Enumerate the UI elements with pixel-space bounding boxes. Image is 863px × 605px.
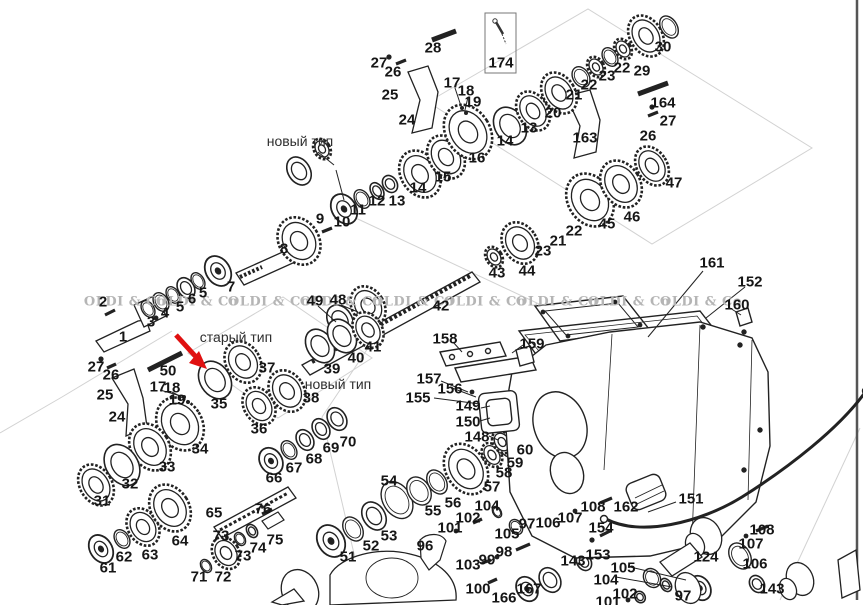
part-number-label: 154	[588, 521, 613, 536]
part-number-label: 31	[94, 494, 111, 509]
part-number-label: 96	[417, 539, 434, 554]
part-number-label: 27	[660, 114, 677, 129]
part-number-label: 26	[103, 368, 120, 383]
part-number-label: 33	[159, 460, 176, 475]
part-number-label: 47	[666, 176, 683, 191]
part-number-label: 26	[385, 65, 402, 80]
part-number-label: 45	[599, 217, 616, 232]
part-number-label: 97	[675, 589, 692, 604]
part-number-label: 28	[425, 41, 442, 56]
part-number-label: 103	[455, 558, 480, 573]
part-number-label: 152	[737, 275, 762, 290]
part-number-label: 6	[188, 292, 196, 307]
part-number-label: 11	[350, 203, 366, 218]
part-number-label: 22	[581, 78, 598, 93]
part-number-label: 143	[560, 554, 585, 569]
part-number-label: 160	[724, 298, 749, 313]
part-number-label: 153	[585, 548, 610, 563]
part-number-label: 48	[330, 293, 347, 308]
part-number-label: 12	[369, 194, 386, 209]
part-number-label: 14	[497, 134, 514, 149]
part-number-label: 30	[655, 40, 672, 55]
part-number-label: 143	[759, 582, 784, 597]
part-number-label: 73	[213, 529, 230, 544]
part-number-label: 42	[433, 299, 450, 314]
part-number-label: 150	[455, 415, 480, 430]
part-number-label: 35	[211, 397, 228, 412]
part-number-label: 75	[267, 533, 284, 548]
part-number-label: 74	[250, 541, 267, 556]
part-number-label: 76	[255, 502, 272, 517]
part-number-label: 51	[340, 550, 357, 565]
part-number-label: 63	[142, 548, 159, 563]
part-number-label: 72	[215, 570, 232, 585]
part-number-label: 124	[693, 550, 718, 565]
part-number-label: 174	[488, 56, 513, 71]
part-number-label: 37	[259, 361, 276, 376]
part-number-label: 23	[535, 244, 552, 259]
part-number-label: 97	[519, 517, 536, 532]
part-number-label: 71	[191, 570, 208, 585]
part-number-label: 149	[455, 399, 480, 414]
part-number-label: 44	[519, 264, 536, 279]
part-number-label: 161	[699, 256, 724, 271]
watermark-text: OLDI & Co	[84, 296, 166, 309]
part-number-label: 55	[425, 504, 442, 519]
part-number-label: 167	[516, 582, 541, 597]
part-number-label: 49	[307, 294, 324, 309]
part-number-label: 19	[169, 393, 186, 408]
part-number-label: 69	[323, 441, 340, 456]
part-number-label: 29	[634, 64, 651, 79]
part-number-label: 36	[251, 422, 268, 437]
part-number-label: 10	[334, 215, 351, 230]
part-number-label: 101	[437, 521, 462, 536]
part-number-label: 148	[464, 430, 489, 445]
part-number-label: 106	[742, 557, 767, 572]
part-number-label: 21	[550, 234, 567, 249]
part-number-label: 70	[340, 435, 357, 450]
part-number-label: 19	[465, 95, 482, 110]
part-number-label: 166	[491, 591, 516, 605]
part-number-label: 65	[206, 506, 223, 521]
watermark-text: OLDI & Co	[228, 296, 310, 309]
part-number-label: 60	[517, 443, 534, 458]
part-number-label: 100	[465, 582, 490, 597]
part-number-label: 53	[381, 529, 398, 544]
part-number-label: 43	[489, 266, 506, 281]
part-number-label: 8	[280, 242, 288, 257]
gearbox-housing	[440, 296, 863, 558]
part-number-label: 151	[678, 492, 703, 507]
part-number-label: 162	[613, 500, 638, 515]
part-number-label: 3	[147, 315, 155, 330]
part-number-label: 38	[303, 391, 320, 406]
part-number-label: 13	[521, 121, 538, 136]
part-number-label: 57	[484, 480, 501, 495]
part-number-label: 22	[566, 224, 583, 239]
part-number-label: 20	[545, 106, 562, 121]
part-number-label: 2	[99, 295, 107, 310]
part-number-label: 99	[479, 553, 496, 568]
part-number-label: 5	[176, 300, 184, 315]
part-number-label: 1	[119, 330, 127, 345]
part-number-label: 98	[496, 545, 513, 560]
type-annotation: новый тип	[267, 134, 334, 148]
part-number-label: 62	[116, 550, 133, 565]
part-number-label: 34	[192, 442, 209, 457]
part-number-label: 66	[266, 471, 283, 486]
part-number-label: 155	[405, 391, 430, 406]
part-number-label: 26	[640, 129, 657, 144]
part-number-label: 16	[469, 151, 486, 166]
part-number-label: 163	[572, 131, 597, 146]
part-number-label: 159	[519, 337, 544, 352]
watermark-text: OLDI & Co	[444, 296, 526, 309]
part-number-label: 9	[316, 212, 324, 227]
part-number-label: 41	[365, 340, 382, 355]
parts-diagram-canvas: OLDI & CoOLDI & CoOLDI & CoOLDI & CoOLDI…	[0, 0, 863, 605]
part-number-label: 73	[235, 549, 252, 564]
type-annotation: старый тип	[200, 330, 272, 344]
part-number-label: 25	[97, 388, 114, 403]
part-number-label: 64	[172, 534, 189, 549]
part-number-label: 61	[100, 561, 117, 576]
part-number-label: 39	[324, 362, 341, 377]
watermark-text: OLDI & Co	[588, 296, 670, 309]
part-number-label: 40	[348, 351, 365, 366]
part-number-label: 157	[416, 372, 441, 387]
part-number-label: 32	[122, 477, 139, 492]
part-number-label: 24	[399, 113, 416, 128]
part-number-label: 46	[624, 210, 641, 225]
part-number-label: 4	[161, 306, 169, 321]
part-number-label: 105	[494, 527, 519, 542]
part-number-label: 107	[557, 511, 582, 526]
part-number-label: 5	[199, 286, 207, 301]
part-number-label: 54	[381, 474, 398, 489]
part-number-label: 108	[580, 500, 605, 515]
part-number-label: 15	[435, 170, 452, 185]
part-number-label: 50	[160, 364, 177, 379]
part-number-label: 14	[410, 181, 427, 196]
part-number-label: 164	[650, 96, 675, 111]
part-number-label: 22	[614, 61, 631, 76]
part-number-label: 24	[109, 410, 126, 425]
part-number-label: 67	[286, 461, 303, 476]
part-number-label: 7	[227, 280, 235, 295]
part-number-label: 101	[595, 595, 620, 605]
part-number-label: 68	[306, 452, 323, 467]
part-number-label: 158	[432, 332, 457, 347]
part-number-label: 52	[363, 539, 380, 554]
part-number-label: 13	[389, 194, 406, 209]
watermark-text: OLDI & Co	[516, 296, 598, 309]
part-number-label: 56	[445, 496, 462, 511]
part-number-label: 25	[382, 88, 399, 103]
part-number-label: 107	[738, 537, 763, 552]
